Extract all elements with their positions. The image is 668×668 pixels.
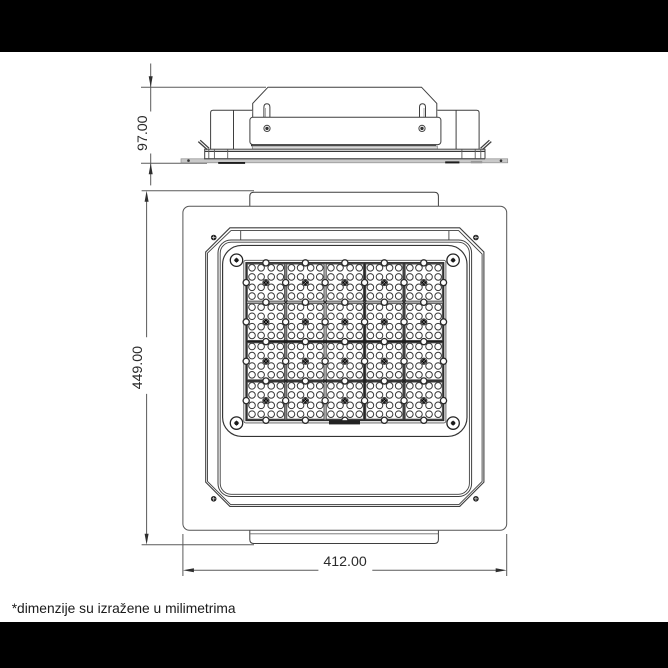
svg-text:412.00: 412.00	[323, 554, 367, 570]
svg-text:449.00: 449.00	[130, 346, 146, 390]
svg-text:*dimenzije su izražene u milim: *dimenzije su izražene u milimetrima	[12, 601, 236, 616]
svg-text:97.00: 97.00	[135, 115, 151, 151]
